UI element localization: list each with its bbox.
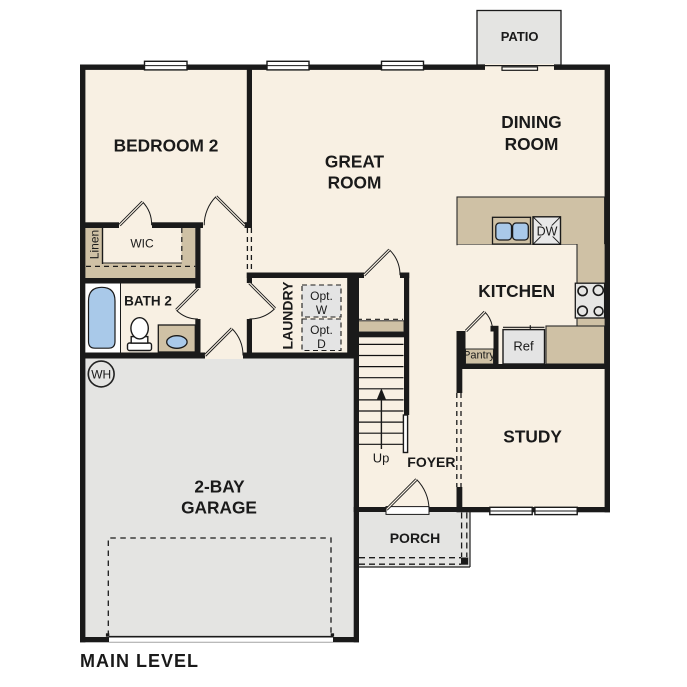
svg-text:D: D bbox=[317, 337, 326, 351]
svg-text:Ref: Ref bbox=[513, 339, 534, 354]
svg-text:Linen: Linen bbox=[88, 230, 102, 259]
svg-text:KITCHEN: KITCHEN bbox=[478, 281, 555, 301]
svg-text:Up: Up bbox=[373, 451, 390, 466]
svg-text:WIC: WIC bbox=[130, 237, 154, 251]
svg-text:GREAT: GREAT bbox=[325, 152, 385, 172]
svg-text:2-BAY: 2-BAY bbox=[194, 477, 245, 497]
svg-text:BEDROOM 2: BEDROOM 2 bbox=[114, 136, 219, 156]
svg-text:LAUNDRY: LAUNDRY bbox=[280, 281, 296, 350]
svg-text:STUDY: STUDY bbox=[503, 426, 562, 446]
svg-text:FOYER: FOYER bbox=[407, 454, 455, 470]
svg-text:MAIN LEVEL: MAIN LEVEL bbox=[80, 651, 199, 671]
svg-text:Opt.: Opt. bbox=[310, 323, 333, 337]
svg-text:PORCH: PORCH bbox=[390, 530, 441, 546]
svg-text:PATIO: PATIO bbox=[501, 29, 539, 44]
svg-text:WH: WH bbox=[91, 368, 111, 382]
svg-text:W: W bbox=[316, 303, 328, 317]
svg-text:Pantry: Pantry bbox=[463, 350, 495, 362]
svg-text:BATH 2: BATH 2 bbox=[124, 294, 172, 309]
svg-text:ROOM: ROOM bbox=[328, 173, 382, 193]
svg-text:Opt.: Opt. bbox=[310, 289, 333, 303]
svg-text:DW: DW bbox=[537, 225, 558, 239]
svg-text:DINING: DINING bbox=[501, 112, 561, 132]
svg-text:ROOM: ROOM bbox=[505, 134, 559, 154]
svg-text:GARAGE: GARAGE bbox=[181, 498, 257, 518]
